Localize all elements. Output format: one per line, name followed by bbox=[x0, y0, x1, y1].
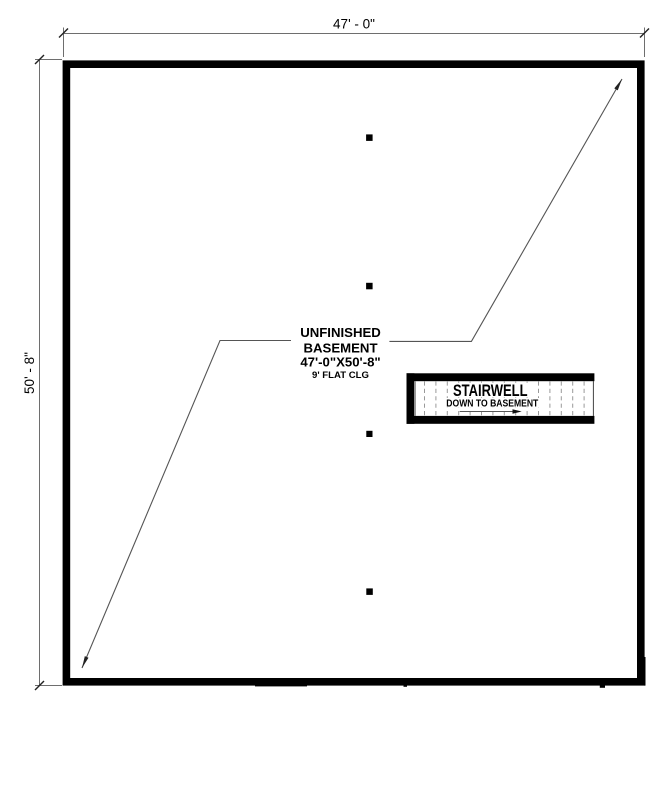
svg-text:9' FLAT CLG: 9' FLAT CLG bbox=[312, 370, 369, 381]
svg-text:47' - 0": 47' - 0" bbox=[333, 17, 375, 32]
svg-text:50' - 8": 50' - 8" bbox=[22, 352, 37, 394]
svg-text:STAIRWELL: STAIRWELL bbox=[453, 382, 528, 400]
svg-text:UNFINISHED: UNFINISHED bbox=[300, 325, 381, 340]
svg-text:DOWN TO BASEMENT: DOWN TO BASEMENT bbox=[446, 398, 539, 409]
svg-text:47'-0"X50'-8": 47'-0"X50'-8" bbox=[300, 354, 380, 369]
